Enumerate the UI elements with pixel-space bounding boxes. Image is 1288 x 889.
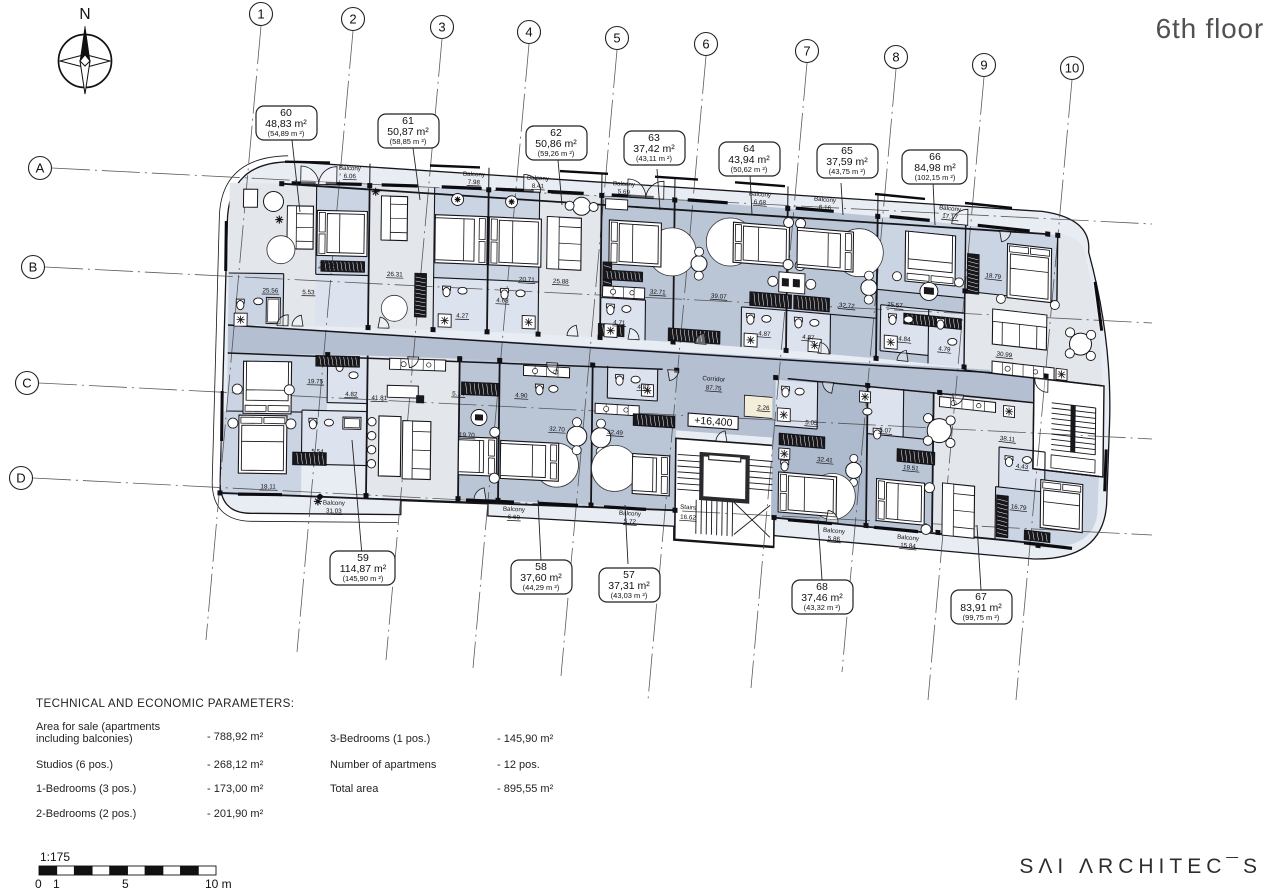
svg-text:(43,11 m ²): (43,11 m ²) [636,154,673,163]
svg-text:(43,75 m ²): (43,75 m ²) [829,167,866,176]
svg-text:26.31: 26.31 [387,271,403,278]
svg-text:17.74: 17.74 [319,261,335,268]
svg-text:4: 4 [525,25,532,40]
svg-text:9: 9 [980,58,987,73]
svg-text:7: 7 [803,44,810,59]
svg-text:C: C [22,376,31,391]
svg-text:(54,89 m ²): (54,89 m ²) [268,129,305,138]
svg-text:Balcony: Balcony [527,174,550,182]
svg-text:10: 10 [1065,61,1079,76]
svg-text:(59,26 m ²): (59,26 m ²) [538,149,575,158]
svg-text:4.27: 4.27 [456,312,469,319]
svg-text:31.03: 31.03 [326,508,342,515]
svg-text:- 12 pos.: - 12 pos. [497,759,540,771]
svg-text:Balcony: Balcony [619,510,642,518]
svg-text:5.53: 5.53 [302,289,315,296]
svg-text:(43,32 m ²): (43,32 m ²) [804,603,841,612]
svg-text:8: 8 [892,50,899,65]
svg-text:0: 0 [35,877,42,889]
svg-text:1-Bedrooms (3 pos.): 1-Bedrooms (3 pos.) [36,783,136,795]
svg-text:25.56: 25.56 [262,287,278,294]
svg-text:including balconies): including balconies) [36,733,133,745]
svg-text:7.98: 7.98 [468,179,481,187]
svg-text:D: D [16,471,25,486]
svg-text:(50,62 m ²): (50,62 m ²) [731,165,768,174]
svg-text:1:175: 1:175 [40,850,70,864]
svg-text:6th floor: 6th floor [1156,13,1264,44]
svg-text:(58,85 m ²): (58,85 m ²) [390,137,427,146]
svg-text:- 145,90 m²: - 145,90 m² [497,733,554,745]
svg-text:(102,15 m ²): (102,15 m ²) [915,173,956,182]
svg-text:Balcony: Balcony [613,180,636,188]
svg-text:TECHNICAL AND ECONOMIC PARAMET: TECHNICAL AND ECONOMIC PARAMETERS: [36,697,294,710]
svg-text:3: 3 [438,20,445,35]
svg-text:2-Bedrooms (2 pos.): 2-Bedrooms (2 pos.) [36,808,136,820]
svg-text:- 788,92 m²: - 788,92 m² [207,731,264,743]
svg-text:Total area: Total area [330,783,379,795]
svg-text:41.81: 41.81 [371,395,387,402]
svg-text:Studios (6 pos.): Studios (6 pos.) [36,759,113,771]
svg-text:2: 2 [349,12,356,27]
svg-text:B: B [29,260,38,275]
svg-text:3-Bedrooms (1 pos.): 3-Bedrooms (1 pos.) [330,733,430,745]
svg-text:(99,75 m ²): (99,75 m ²) [963,613,1000,622]
svg-text:5.54: 5.54 [311,448,324,455]
svg-text:6: 6 [702,37,709,52]
svg-text:Balcony: Balcony [339,165,362,173]
svg-text:1: 1 [53,877,60,889]
svg-text:A: A [36,161,45,176]
svg-text:N: N [79,6,90,23]
svg-text:- 268,12 m²: - 268,12 m² [207,759,264,771]
svg-text:4.82: 4.82 [345,391,358,398]
svg-text:10 m: 10 m [205,877,232,889]
svg-text:5: 5 [613,31,620,46]
svg-text:Number of apartmens: Number of apartmens [330,759,437,771]
svg-text:Balcony: Balcony [503,506,526,514]
svg-text:- 895,55 m²: - 895,55 m² [497,783,554,795]
svg-text:Balcony: Balcony [323,500,346,508]
svg-text:5: 5 [122,877,129,889]
svg-text:6.06: 6.06 [344,173,357,180]
svg-text:(43,03 m ²): (43,03 m ²) [611,591,648,600]
svg-text:18.11: 18.11 [260,483,276,490]
svg-text:- 173,00 m²: - 173,00 m² [207,783,264,795]
svg-text:(145,90 m ²): (145,90 m ²) [343,574,384,583]
svg-text:19.75: 19.75 [307,378,323,385]
svg-text:(44,29 m ²): (44,29 m ²) [523,583,560,592]
svg-text:Balcony: Balcony [463,171,486,179]
svg-text:- 201,90 m²: - 201,90 m² [207,808,264,820]
svg-text:SΛI ΛRCHITEC¯S: SΛI ΛRCHITEC¯S [1019,855,1262,878]
svg-text:Area for sale (apartments: Area for sale (apartments [36,721,161,733]
svg-text:Stairs: Stairs [680,504,697,512]
svg-text:1: 1 [257,7,264,22]
